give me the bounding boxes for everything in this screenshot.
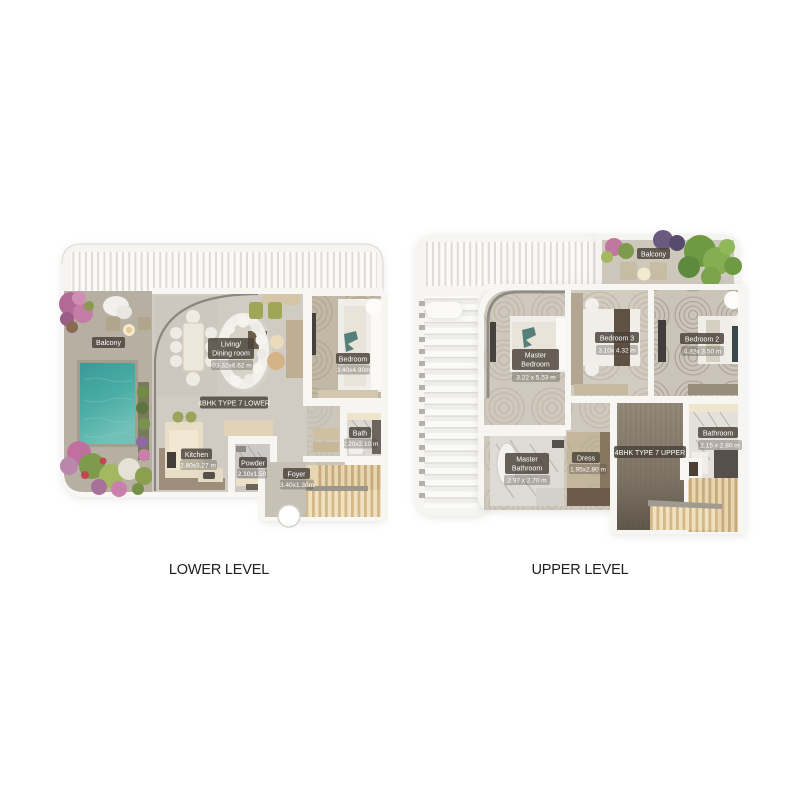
svg-text:2.80x3.27 m: 2.80x3.27 m (180, 463, 216, 470)
svg-text:4.32x 3.50 m: 4.32x 3.50 m (684, 349, 722, 356)
svg-text:1.95x2.80 m: 1.95x2.80 m (570, 467, 606, 474)
svg-text:3.22 x 5.53 m: 3.22 x 5.53 m (516, 375, 555, 382)
svg-text:2.20x2.10 m: 2.20x2.10 m (343, 441, 379, 448)
svg-text:UPPER LEVEL: UPPER LEVEL (532, 562, 629, 578)
svg-text:2.10x1.50: 2.10x1.50 (238, 471, 267, 478)
svg-text:Master: Master (516, 457, 538, 464)
svg-text:Master: Master (525, 353, 547, 360)
svg-text:4BHK TYPE 7 LOWER: 4BHK TYPE 7 LOWER (198, 401, 270, 408)
svg-text:Balcony: Balcony (641, 252, 666, 259)
svg-text:Powder: Powder (241, 461, 265, 468)
svg-text:Dress: Dress (577, 456, 596, 463)
svg-text:Balcony: Balcony (96, 340, 121, 347)
svg-text:Bathroom: Bathroom (512, 466, 543, 473)
svg-text:2.97 x 2.70 m: 2.97 x 2.70 m (507, 478, 546, 485)
svg-text:3.40x1.30m: 3.40x1.30m (280, 482, 314, 489)
svg-text:Living/: Living/ (221, 342, 241, 349)
svg-text:3.10x 4.32 m: 3.10x 4.32 m (598, 348, 636, 355)
svg-text:3.40x4.90m: 3.40x4.90m (337, 367, 371, 374)
svg-text:Foyer: Foyer (288, 472, 307, 479)
svg-text:4BHK TYPE 7 UPPER: 4BHK TYPE 7 UPPER (615, 450, 685, 457)
svg-text:Bedroom 2: Bedroom 2 (685, 337, 719, 344)
svg-text:Bath: Bath (353, 431, 368, 438)
svg-text:Bedroom: Bedroom (339, 357, 368, 364)
svg-text:Kitchen: Kitchen (185, 452, 208, 459)
svg-text:Bedroom 3: Bedroom 3 (600, 336, 634, 343)
svg-text:LOWER LEVEL: LOWER LEVEL (169, 562, 269, 578)
svg-text:2.15 x 2.80 m: 2.15 x 2.80 m (700, 443, 739, 450)
svg-text:Dining room: Dining room (212, 351, 250, 358)
svg-text:03.32x6.62 m: 03.32x6.62 m (212, 363, 251, 370)
svg-text:Bedroom: Bedroom (521, 362, 550, 369)
svg-text:Bathroom: Bathroom (703, 431, 734, 438)
